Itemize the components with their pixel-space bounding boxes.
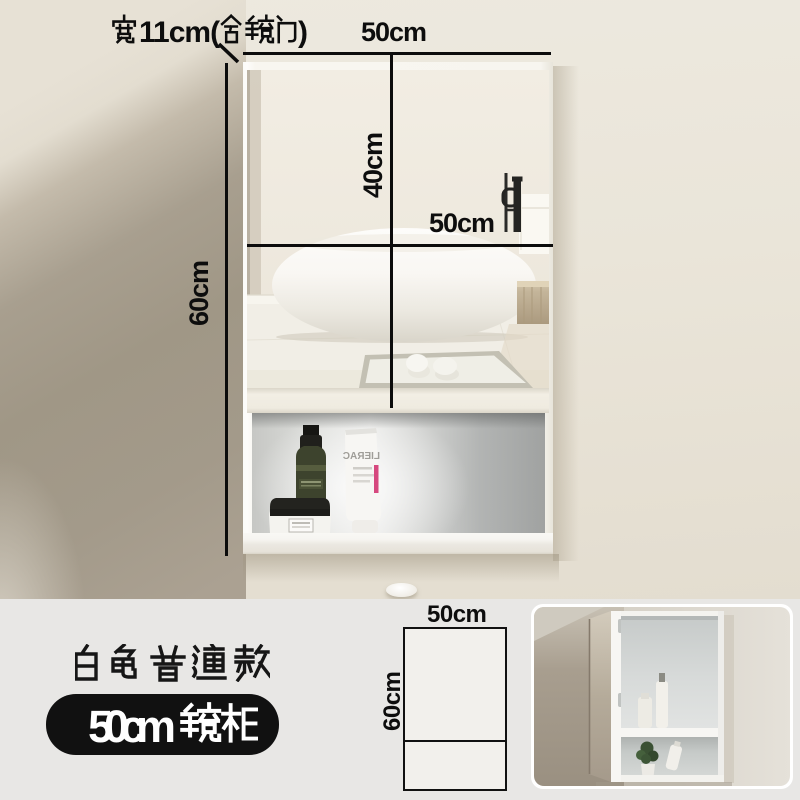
svg-text:11cm(: 11cm( xyxy=(139,16,220,49)
svg-text:50cm: 50cm xyxy=(88,702,176,750)
svg-text:): ) xyxy=(298,16,308,49)
svg-text:LIERAC: LIERAC xyxy=(343,451,380,462)
